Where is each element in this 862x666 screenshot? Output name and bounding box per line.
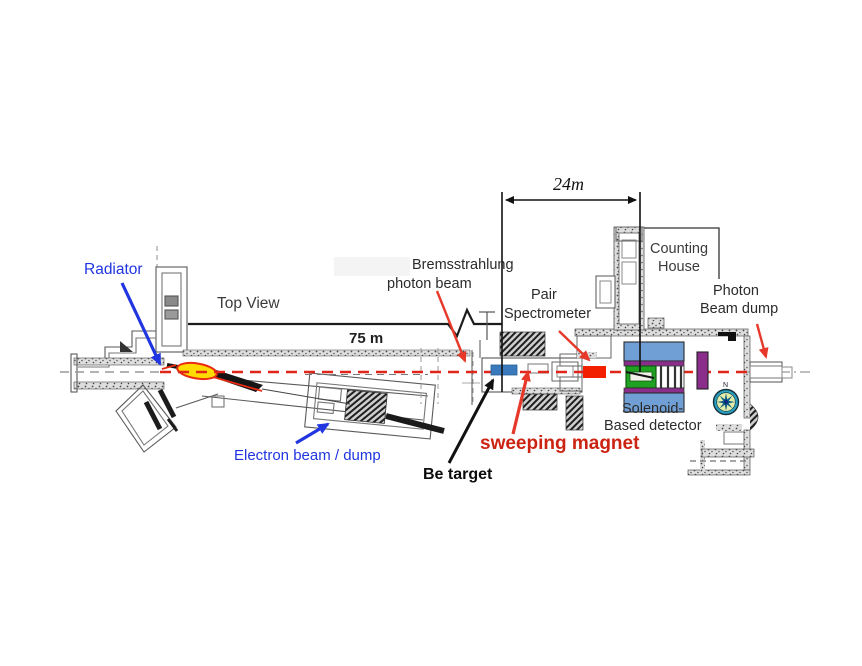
sweeping-magnet-label: sweeping magnet [480, 434, 639, 455]
distance-75m-label: 75 m [349, 331, 383, 348]
compass-north-label: N [723, 382, 728, 390]
radiator-beam-optics [162, 360, 263, 392]
sweeping-magnet-block [491, 365, 517, 375]
bremsstrahlung-label-line1: Bremsstrahlung [412, 258, 514, 274]
compass-icon [714, 390, 739, 415]
photon-beam-dump-label-line2: Beam dump [700, 302, 778, 318]
counting-house-label-line1: Counting [650, 242, 708, 258]
electron-beam-dump-building [116, 373, 444, 452]
be-target-label: Be target [423, 466, 492, 484]
photon-dump-arrow [757, 324, 766, 357]
detector-plate [697, 352, 708, 389]
pair-spectrometer-label-line2: Spectrometer [504, 307, 591, 323]
photon-beam-dump-label-line1: Photon [713, 284, 759, 300]
pair-spectrometer-label-line1: Pair [531, 288, 557, 304]
electron-beam-dump-label: Electron beam / dump [234, 448, 381, 465]
bremsstrahlung-label-line2: photon beam [387, 277, 472, 293]
distance-24m-label: 24m [553, 175, 584, 195]
electron-beam-arrow [296, 424, 328, 443]
solenoid-detector-label-line1: Solenoid- [622, 402, 683, 418]
faded-box [334, 257, 410, 276]
facility-diagram: Radiator Top View 75 m 24m Bremsstrahlun… [0, 0, 862, 666]
facility-drawing [0, 0, 862, 666]
top-view-label: Top View [217, 295, 280, 312]
pair-spectrometer-block [583, 366, 606, 378]
distance-75m-line [188, 310, 502, 336]
counting-house-label-line2: House [658, 260, 700, 276]
radiator-label: Radiator [84, 261, 143, 278]
